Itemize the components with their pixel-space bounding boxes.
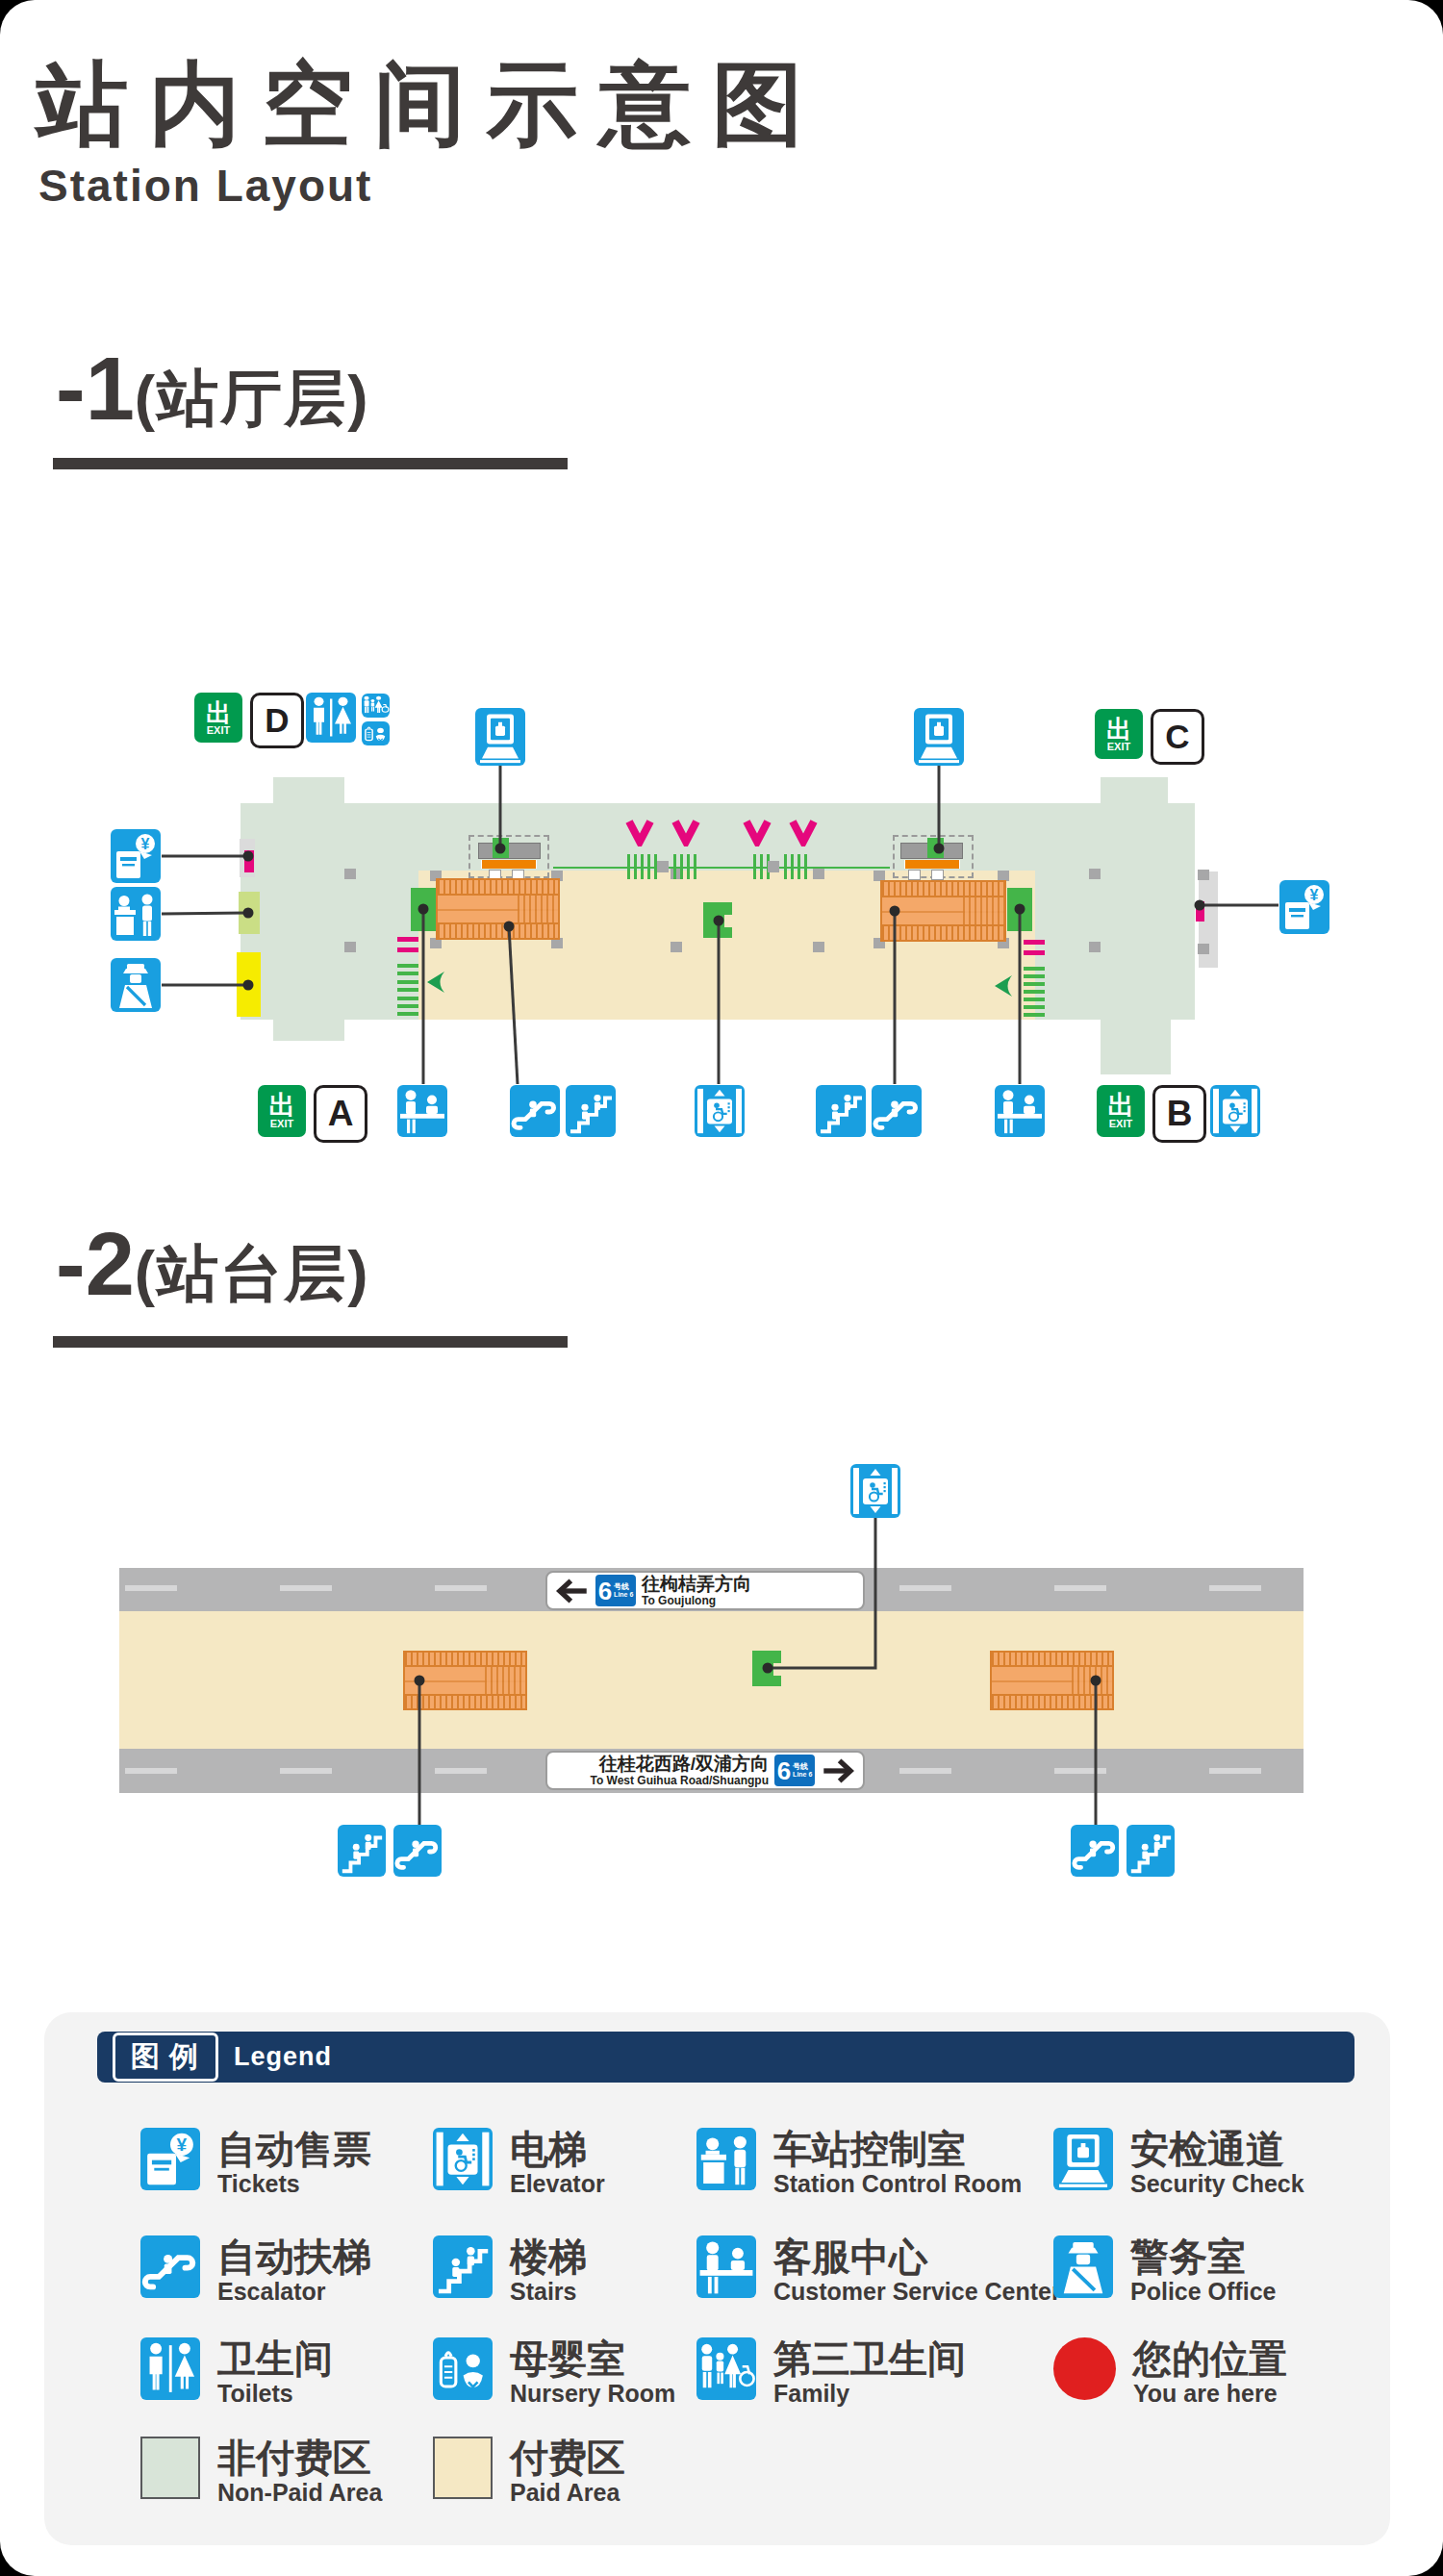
security-scanner-belt: [927, 838, 944, 858]
nonpaid-bump-bottom-left: [273, 1020, 344, 1041]
direction-text: 往桂花西路/双浦方向To West Guihua Road/Shuangpu: [555, 1754, 769, 1787]
line-6-badge: 6号线Line 6: [774, 1755, 815, 1786]
legend-family-icon: [696, 2337, 756, 2400]
exit-gate-bar-green: [1024, 974, 1045, 978]
svg-text:¥: ¥: [177, 2135, 188, 2156]
entry-gate-bar: [791, 854, 794, 879]
station-control-room-icon-glyph: [111, 887, 161, 941]
entry-direction-arrow: [743, 818, 772, 846]
swatch-paid-swatch: [433, 2437, 493, 2499]
legend-item-text: 楼梯 Stairs: [510, 2235, 587, 2304]
exit-gate-bar-green: [1024, 1005, 1045, 1009]
you-are-here-dot: [1053, 2337, 1116, 2400]
legend-label-zh: 您的位置: [1133, 2337, 1287, 2380]
security-scanner-machine: [478, 843, 541, 859]
line-number: 6: [598, 1578, 612, 1604]
legend-label-en: Tickets: [217, 2170, 371, 2198]
exit-direction-arrow: [991, 973, 1014, 998]
track-dash: [125, 1768, 177, 1774]
track-dash: [899, 1768, 951, 1774]
legend-item-text: 电梯 Elevator: [510, 2128, 605, 2196]
exit-sign: 出EXIT: [194, 693, 242, 743]
stairs-icon-glyph: [816, 1085, 866, 1137]
pillar: [344, 869, 356, 879]
exit-zh: 出: [1106, 717, 1131, 742]
pillar: [1089, 869, 1101, 879]
legend-label-en: You are here: [1133, 2380, 1287, 2408]
legend-nursery-icon: [433, 2337, 493, 2400]
exit-sign: 出EXIT: [1095, 709, 1143, 759]
pillar: [813, 869, 824, 879]
line-6-badge: 6号线Line 6: [595, 1575, 636, 1606]
pillar: [671, 942, 682, 952]
nonpaid-bump-top-left: [273, 777, 344, 803]
legend-label-en: Nursery Room: [510, 2380, 675, 2408]
legend-service-icon: [696, 2235, 756, 2298]
legend-item-text: 客服中心 Customer Service Center: [773, 2235, 1061, 2304]
escalator-mid: [992, 1667, 1112, 1694]
legend-item-text: 母婴室 Nursery Room: [510, 2337, 675, 2406]
exit-gate-bar-green: [397, 1012, 418, 1016]
stairs-icon-glyph: [1127, 1825, 1175, 1877]
legend-item-text: 安检通道 Security Check: [1130, 2128, 1304, 2196]
legend-label-en: Family: [773, 2380, 966, 2408]
escalator-lane: [882, 924, 1004, 940]
entry-gate-bar: [797, 854, 800, 879]
police-office-location: [237, 952, 261, 1017]
svg-text:¥: ¥: [141, 836, 150, 852]
escalator-lane: [992, 1653, 1112, 1667]
exit-en: EXIT: [270, 1119, 293, 1129]
entry-gate-bar: [634, 854, 637, 879]
concourse-elevator-location-notch: [724, 915, 732, 927]
line-en: Line 6: [793, 1771, 812, 1778]
entry-gate-bar: [647, 854, 650, 879]
police-office-icon-glyph: [111, 958, 161, 1012]
escalator-mid: [882, 897, 1004, 924]
track-dash: [435, 1768, 487, 1774]
nursery-room-icon: [362, 721, 390, 745]
legend-police-icon: [1053, 2235, 1113, 2298]
legend-label-en: Elevator: [510, 2170, 605, 2198]
entry-direction-arrow: [625, 818, 654, 846]
exit-en: EXIT: [1109, 1119, 1132, 1129]
line-en: Line 6: [614, 1591, 633, 1598]
escalator-mid: [438, 896, 558, 922]
entry-gate-bar: [753, 854, 756, 879]
elevator-icon-glyph: [1210, 1085, 1260, 1137]
escalator-icon: [510, 1085, 560, 1137]
toilets-icon-glyph: [306, 693, 356, 743]
exit-gate-bar-magenta: [1024, 950, 1045, 955]
pillar: [1198, 870, 1209, 880]
stairs-icon-glyph: [566, 1085, 616, 1137]
line-zh: 号线: [793, 1763, 812, 1771]
legend-label-zh: 母婴室: [510, 2337, 675, 2380]
direction-arrow-left: [555, 1577, 590, 1605]
legend-label-en: Stairs: [510, 2278, 587, 2306]
legend-elevator-icon: [433, 2128, 493, 2190]
legend-item-text: 车站控制室 Station Control Room: [773, 2128, 1022, 2196]
tickets-icon-glyph: ¥: [111, 829, 161, 883]
turnstile: [931, 870, 944, 880]
nonpaid-bump-top-right: [1101, 777, 1168, 803]
direction-sign-to-goujulong: 6号线Line 6往枸桔弄方向To Goujulong: [545, 1571, 865, 1610]
elevator-icon: [1210, 1085, 1260, 1137]
line-number: 6: [777, 1758, 791, 1783]
track-dash: [899, 1585, 951, 1591]
legend-toilet-icon: [140, 2337, 200, 2400]
track-dash: [1209, 1768, 1261, 1774]
track-dash: [125, 1585, 177, 1591]
pillar: [344, 942, 356, 952]
escalator-lane: [992, 1694, 1112, 1708]
ticket-machine-right: [1196, 901, 1204, 922]
control-room-location: [239, 892, 260, 934]
entry-gate-bar: [760, 854, 763, 879]
exit-letter-D: D: [250, 693, 304, 748]
exit-letter-A: A: [314, 1085, 367, 1143]
nursery-room-icon-glyph: [362, 721, 390, 745]
legend-item-station-control-room: 车站控制室 Station Control Room: [696, 2128, 1062, 2196]
track-dash: [1209, 1585, 1261, 1591]
legend-ticket-icon: ¥: [140, 2128, 200, 2190]
legend-label-zh: 非付费区: [217, 2437, 382, 2479]
direction-arrow-right: [821, 1756, 855, 1785]
line-zh: 号线: [614, 1583, 633, 1591]
track-dash: [1054, 1585, 1106, 1591]
platform-escalator-block: [990, 1651, 1114, 1710]
exit-gate-bar-green: [397, 1004, 418, 1008]
legend-scanner-icon: [1053, 2128, 1113, 2190]
escalator-lane: [882, 882, 1004, 897]
legend-label-zh: 卫生间: [217, 2337, 333, 2380]
security-check-icon: [914, 708, 964, 766]
elevator-icon-glyph: [850, 1464, 900, 1518]
entry-gate-bar: [804, 854, 807, 879]
legend-label-en: Police Office: [1130, 2278, 1276, 2306]
entry-gate-bar: [673, 854, 676, 879]
stairs-icon: [1127, 1825, 1175, 1877]
concourse-escalator-block: [880, 880, 1006, 942]
legend-stairs-icon: [433, 2235, 493, 2298]
legend-label-en: Paid Area: [510, 2479, 625, 2507]
legend-label-zh: 警务室: [1130, 2235, 1276, 2278]
pillar: [1089, 942, 1101, 952]
legend-item-you-are-here: 您的位置 You are here: [1053, 2337, 1419, 2406]
exit-gate-bar-green: [397, 988, 418, 992]
security-scanner-belt: [493, 838, 509, 858]
entry-gate-bar: [694, 854, 696, 879]
escalator-mid: [405, 1667, 525, 1694]
track-dash: [280, 1585, 332, 1591]
customer-service-icon-glyph: [397, 1085, 447, 1137]
customer-service-icon: [397, 1085, 447, 1137]
legend-label-zh: 客服中心: [773, 2235, 1061, 2278]
exit-gate-bar-green: [397, 964, 418, 968]
legend-panel: 图例 Legend ¥ 自动售票 Tickets 电梯 Elevator 车站控…: [44, 2012, 1390, 2545]
destination-zh: 往桂花西路/双浦方向: [599, 1754, 769, 1775]
family-toilet-icon: [362, 694, 390, 718]
police-office-icon: [111, 958, 161, 1012]
escalator-icon: [393, 1825, 442, 1877]
escalator-icon: [872, 1085, 922, 1137]
track-dash: [435, 1585, 487, 1591]
stairs-icon-glyph: [338, 1825, 386, 1877]
exit-gate-bar-magenta: [397, 937, 418, 942]
exit-letter-B: B: [1152, 1085, 1206, 1143]
legend-label-en: Station Control Room: [773, 2170, 1022, 2198]
exit-sign: 出EXIT: [1097, 1085, 1145, 1137]
legend-label-en: Non-Paid Area: [217, 2479, 382, 2507]
swatch-nonpaid-swatch: [140, 2437, 200, 2499]
exit-en: EXIT: [1107, 742, 1130, 752]
nonpaid-bump-bottom-right: [1101, 1020, 1171, 1074]
platform-paid-area: [119, 1611, 1304, 1749]
direction-text: 往枸桔弄方向To Goujulong: [642, 1574, 855, 1607]
elevator-icon: [695, 1085, 745, 1137]
exit-en: EXIT: [207, 725, 230, 736]
direction-sign-to-west-guihua: 往桂花西路/双浦方向To West Guihua Road/Shuangpu6号…: [545, 1751, 865, 1790]
legend-item-security-check: 安检通道 Security Check: [1053, 2128, 1419, 2196]
legend-control-icon: [696, 2128, 756, 2190]
escalator-lane: [438, 922, 558, 938]
station-control-room-icon: [111, 887, 161, 941]
legend-item-text: 付费区 Paid Area: [510, 2437, 625, 2505]
track-dash: [280, 1768, 332, 1774]
entry-gate-bar: [784, 854, 787, 879]
turnstile: [908, 870, 921, 880]
legend-label-zh: 车站控制室: [773, 2128, 1022, 2170]
exit-zh: 出: [1108, 1093, 1134, 1119]
exit-gate-bar-green: [397, 972, 418, 975]
legend-label-en: Customer Service Center: [773, 2278, 1061, 2306]
escalator-icon-glyph: [1071, 1825, 1119, 1877]
entry-gate-bar: [687, 854, 690, 879]
exit-gate-bar-green: [1024, 1013, 1045, 1017]
escalator-icon: [1071, 1825, 1119, 1877]
legend-label-en: Security Check: [1130, 2170, 1304, 2198]
pillar: [813, 942, 824, 952]
legend-item-text: 您的位置 You are here: [1133, 2337, 1287, 2406]
legend-label-zh: 电梯: [510, 2128, 605, 2170]
exit-zh: 出: [269, 1093, 295, 1119]
tickets-icon: ¥: [1279, 880, 1329, 934]
legend-label-en: Escalator: [217, 2278, 371, 2306]
wide-service-gate: [1007, 888, 1032, 931]
legend-item-customer-service-center: 客服中心 Customer Service Center: [696, 2235, 1062, 2304]
stairs-icon: [566, 1085, 616, 1137]
concourse-escalator-block: [436, 878, 560, 940]
security-tray-table: [481, 860, 537, 869]
legend-item-text: 自动售票 Tickets: [217, 2128, 371, 2196]
wide-service-gate: [411, 888, 436, 931]
gate-pillar: [768, 861, 779, 872]
exit-gate-bar-green: [1024, 990, 1045, 994]
legend-label-zh: 自动扶梯: [217, 2235, 371, 2278]
legend-label-zh: 楼梯: [510, 2235, 587, 2278]
exit-gate-bar-magenta: [1024, 940, 1045, 945]
legend-title-zh: 图例: [113, 2033, 218, 2082]
legend-label-zh: 第三卫生间: [773, 2337, 966, 2380]
security-check-icon-glyph: [914, 708, 964, 766]
legend-label-zh: 安检通道: [1130, 2128, 1304, 2170]
entry-direction-arrow: [789, 818, 818, 846]
exit-sign: 出EXIT: [258, 1085, 306, 1137]
legend-item-text: 第三卫生间 Family: [773, 2337, 966, 2406]
legend-item-police-office: 警务室 Police Office: [1053, 2235, 1419, 2304]
legend-item-paid-area: 付费区 Paid Area: [433, 2437, 798, 2505]
exit-gate-bar-green: [397, 997, 418, 1000]
exit-gate-bar-green: [397, 980, 418, 984]
destination-en: To Goujulong: [642, 1595, 716, 1607]
elevator-icon: [850, 1464, 900, 1518]
destination-zh: 往枸桔弄方向: [642, 1574, 751, 1595]
escalator-icon-glyph: [510, 1085, 560, 1137]
platform-elevator-location-notch: [773, 1663, 781, 1676]
svg-text:¥: ¥: [1310, 887, 1319, 903]
elevator-icon-glyph: [695, 1085, 745, 1137]
station-layout-poster: 站内空间示意图 Station Layout -1 (站厅层) -2 (站台层)…: [0, 0, 1443, 2576]
legend-item-family: 第三卫生间 Family: [696, 2337, 1062, 2406]
legend-item-text: 自动扶梯 Escalator: [217, 2235, 371, 2304]
entry-direction-arrow: [671, 818, 700, 846]
legend-title-en: Legend: [234, 2042, 332, 2072]
escalator-lane: [405, 1694, 525, 1708]
entry-gate-line: [553, 867, 890, 869]
escalator-icon-glyph: [872, 1085, 922, 1137]
legend-label-en: Toilets: [217, 2380, 333, 2408]
family-toilet-icon-glyph: [362, 694, 390, 718]
platform-escalator-block: [403, 1651, 527, 1710]
track-dash: [1054, 1768, 1106, 1774]
gate-pillar: [657, 861, 669, 872]
security-check-icon: [475, 708, 525, 766]
tickets-icon-glyph: ¥: [1279, 880, 1329, 934]
entry-gate-bar: [641, 854, 644, 879]
toilets-icon: [306, 693, 356, 743]
pillar: [1198, 944, 1209, 954]
customer-service-icon: [995, 1085, 1045, 1137]
legend-header-bar: 图例 Legend: [97, 2032, 1354, 2083]
ticket-machine-left: [244, 850, 254, 872]
legend-item-text: 警务室 Police Office: [1130, 2235, 1276, 2304]
escalator-lane: [438, 880, 558, 896]
exit-letter-C: C: [1151, 709, 1204, 765]
tickets-icon: ¥: [111, 829, 161, 883]
legend-escalator-icon: [140, 2235, 200, 2298]
legend-label-zh: 付费区: [510, 2437, 625, 2479]
exit-zh: 出: [206, 700, 231, 725]
stairs-icon: [816, 1085, 866, 1137]
exit-gate-bar-green: [1024, 967, 1045, 971]
customer-service-icon-glyph: [995, 1085, 1045, 1137]
entry-gate-bar: [680, 854, 683, 879]
stairs-icon: [338, 1825, 386, 1877]
escalator-icon-glyph: [393, 1825, 442, 1877]
security-tray-table: [904, 860, 960, 869]
entry-gate-bar: [627, 854, 630, 879]
exit-gate-bar-green: [1024, 982, 1045, 986]
legend-item-text: 非付费区 Non-Paid Area: [217, 2437, 382, 2505]
destination-en: To West Guihua Road/Shuangpu: [590, 1775, 769, 1787]
legend-label-zh: 自动售票: [217, 2128, 371, 2170]
security-check-icon-glyph: [475, 708, 525, 766]
escalator-lane: [405, 1653, 525, 1667]
exit-gate-bar-magenta: [397, 947, 418, 952]
exit-gate-bar-green: [1024, 998, 1045, 1001]
exit-direction-arrow: [423, 970, 446, 995]
legend-item-text: 卫生间 Toilets: [217, 2337, 333, 2406]
